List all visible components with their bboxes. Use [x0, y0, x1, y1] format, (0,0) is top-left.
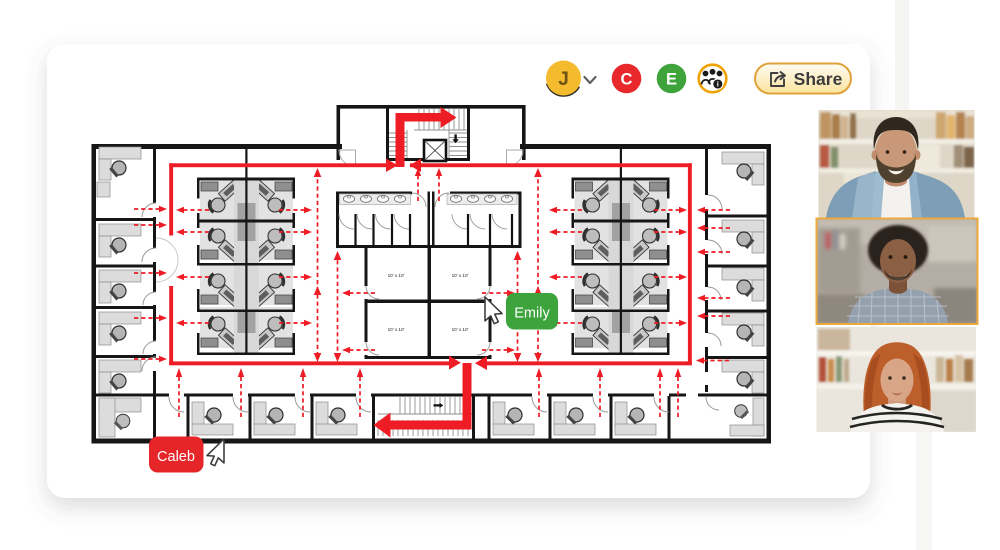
svg-text:10' x 10': 10' x 10' [452, 327, 469, 332]
svg-text:i: i [717, 80, 719, 89]
svg-text:E: E [666, 71, 677, 89]
svg-text:J: J [558, 69, 569, 90]
svg-text:10' x 10': 10' x 10' [388, 327, 405, 332]
svg-text:10' x 10': 10' x 10' [388, 273, 405, 278]
svg-text:Caleb: Caleb [157, 449, 195, 465]
svg-text:C: C [621, 71, 633, 89]
svg-text:Emily: Emily [514, 306, 550, 322]
svg-text:Share: Share [794, 69, 843, 89]
svg-text:10' x 10': 10' x 10' [452, 273, 469, 278]
